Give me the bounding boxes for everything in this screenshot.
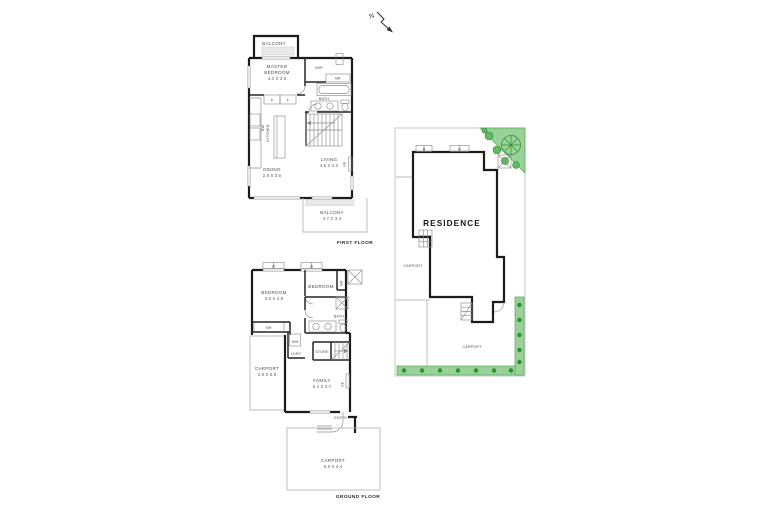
label-balcony-top: BALCONY xyxy=(262,41,286,46)
hatch-x xyxy=(348,270,362,284)
label-wm: WM xyxy=(292,340,299,344)
sink-icon xyxy=(313,323,319,329)
roof-window-symbol xyxy=(416,146,469,152)
label-robe-right: BR xyxy=(340,280,344,286)
dining-window xyxy=(248,166,250,186)
kitchen-counter xyxy=(249,98,261,168)
awning-window-symbol xyxy=(263,263,322,269)
label-kitchen: KITCHEN xyxy=(266,124,270,141)
stair-treads xyxy=(461,303,472,320)
label-balcony-bottom: BALCONY xyxy=(320,210,344,215)
label-bath: BATH xyxy=(319,97,329,101)
shrub-icon xyxy=(513,162,520,169)
first-floor-title: FIRST FLOOR xyxy=(337,240,374,246)
porch-walls xyxy=(348,417,357,433)
dims-bedroom-left: 3.8 X 4.8 xyxy=(265,296,284,301)
kitchen-sink xyxy=(250,114,260,126)
window-tick xyxy=(273,265,275,268)
label-bedroom-right: BEDROOM xyxy=(308,284,334,289)
label-bedroom-left: BEDROOM xyxy=(261,290,287,295)
stair-arrow-head xyxy=(307,121,312,125)
hatch-box-site xyxy=(498,155,511,168)
site-plan: RESIDENCE CARPORT CARPORT xyxy=(395,128,525,376)
sink-icon xyxy=(325,323,331,329)
stairs-first-floor xyxy=(306,112,342,146)
label-laundry: LDRY xyxy=(291,352,302,356)
label-living: LIVING xyxy=(321,157,338,162)
label-bath-ground: BATH xyxy=(334,315,344,319)
label-fridge: F xyxy=(287,99,290,103)
dims-master: 4.0 X 3.5 xyxy=(268,76,287,81)
ground-floor-title: GROUND FLOOR xyxy=(336,494,380,500)
dims-carport-bottom: 6.8 X 4.4 xyxy=(324,464,343,469)
dims-dining: 2.8 X 3.5 xyxy=(263,173,282,178)
living-balcony-slider xyxy=(312,197,332,199)
label-dining: DINING xyxy=(263,167,281,172)
living-window xyxy=(351,176,353,190)
label-entry: ENTRY xyxy=(334,416,348,420)
entry-area: ENTRY xyxy=(317,412,357,433)
label-robe-left: BR xyxy=(266,326,272,330)
entry-door-arc xyxy=(332,421,343,432)
bedroom-window xyxy=(263,269,284,271)
dining-bottom-window xyxy=(254,197,300,199)
balcony-slider-window xyxy=(262,57,290,59)
shrub-icon xyxy=(485,132,493,140)
ground-floor-plan: BEDROOM 3.8 X 4.8 BEDROOM BR BR WM LDRY … xyxy=(250,263,380,501)
label-store: STORE xyxy=(315,350,329,354)
residence-label: RESIDENCE xyxy=(423,219,481,228)
site-carport-bottom-label: CARPORT xyxy=(462,345,482,349)
hatch-box xyxy=(348,270,362,284)
toilet-icon xyxy=(342,103,348,111)
master-door-arc xyxy=(297,86,305,94)
label-carport-bottom: CARPORT xyxy=(321,458,345,463)
north-arrow-line xyxy=(377,12,390,30)
label-master-line1: MASTER xyxy=(267,64,288,69)
window-tick xyxy=(423,148,425,151)
garden-plants xyxy=(402,303,522,373)
store-stairs: STORE xyxy=(313,342,350,360)
label-fireplace-ground: FP xyxy=(341,381,345,386)
window-tick xyxy=(311,265,313,268)
balcony-bottom-deck xyxy=(306,200,354,206)
floorplan-canvas: N BALCONY MASTER BEDROOM 4.0 X 3.5 P F W… xyxy=(0,0,768,512)
sink-icon xyxy=(327,103,333,109)
north-arrow: N xyxy=(368,12,393,33)
site-stair-bottom xyxy=(461,303,472,320)
first-floor-plan: BALCONY MASTER BEDROOM 4.0 X 3.5 P F WIR… xyxy=(248,36,373,246)
label-fireplace: FP xyxy=(343,161,347,166)
dims-balcony-bottom: 4.7 X 3.4 xyxy=(323,216,342,221)
master-window xyxy=(248,66,250,88)
label-robe: BR xyxy=(335,77,341,81)
label-carport-left: CARPORT xyxy=(255,366,279,371)
window-tick xyxy=(459,148,461,151)
tree-spokes xyxy=(502,136,521,155)
family-window xyxy=(310,411,330,413)
bedroom-window xyxy=(301,269,322,271)
dims-living: 4.5 X 4.3 xyxy=(320,163,339,168)
bathtub-inner xyxy=(319,86,349,94)
dims-family: 5.4 X 3.7 xyxy=(313,384,332,389)
site-carport-left-label: CARPORT xyxy=(403,264,423,268)
north-label: N xyxy=(368,12,375,20)
hatch-x xyxy=(498,155,511,168)
tree-icon xyxy=(502,136,521,155)
kitchen-area: KITCHEN DW xyxy=(249,98,285,168)
residence-door-arc xyxy=(494,302,504,312)
kitchen-island xyxy=(274,116,285,158)
entry-steps xyxy=(317,426,332,432)
balcony-deck xyxy=(262,47,294,55)
bath-door-arc xyxy=(305,310,313,318)
shrub-icon xyxy=(482,128,487,133)
residence-outline xyxy=(413,152,504,322)
label-family: FAMILY xyxy=(313,378,331,383)
label-dishwasher: DW xyxy=(261,124,265,131)
label-master-line2: BEDROOM xyxy=(264,70,290,75)
shrub-icon xyxy=(493,146,501,154)
dims-carport-left: 2.8 X 5.8 xyxy=(258,372,277,377)
floorplan-page: N BALCONY MASTER BEDROOM 4.0 X 3.5 P F W… xyxy=(0,0,768,512)
dishwasher-box xyxy=(250,128,260,140)
label-wir: WIR xyxy=(315,66,323,70)
label-pantry: P xyxy=(271,99,274,103)
stair-arrow-head xyxy=(344,349,349,353)
